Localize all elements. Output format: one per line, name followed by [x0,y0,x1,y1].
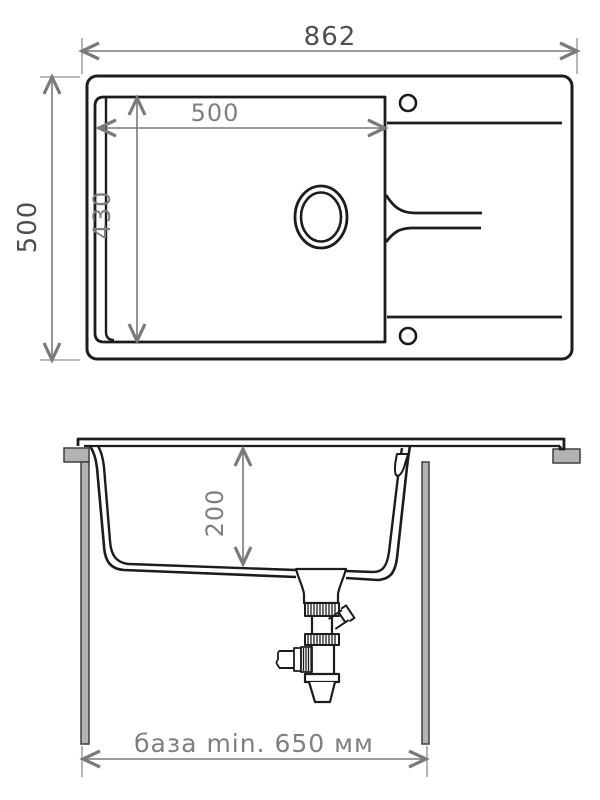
dim-base-width: база min. 650 мм [82,729,427,777]
countertop-rim [78,439,564,449]
inlet-collar [294,648,301,671]
coupling-nut-lower [305,634,339,645]
dim-label-base-width: база min. 650 мм [134,729,374,758]
dim-bowl-height: 200 [201,449,251,564]
section-view: 200 база min. 650 мм [64,439,580,777]
drain-assembly [276,569,354,702]
countertop-tab-right [553,449,580,463]
dim-label-overall-width: 862 [304,22,357,52]
inlet-broken-end [276,651,279,668]
inlet-pipe [276,647,312,672]
dim-overall-depth: 500 [13,77,80,360]
drain-flange [296,569,346,603]
cabinet-wall-left [81,462,89,744]
dim-label-overall-depth: 500 [13,201,43,254]
dim-overall-width: 862 [82,22,577,74]
bowl-wall-left-outer [90,446,296,577]
dim-label-bowl-width: 500 [191,99,240,127]
sink-technical-drawing: 862 500 500 430 [0,0,600,800]
drawing-page: 862 500 500 430 [0,0,600,800]
dim-label-bowl-depth: 430 [88,191,116,240]
coupling-nut-upper [305,603,339,616]
rim-top-line [78,439,564,449]
trap-lip [305,674,339,682]
cabinet-wall-right [422,462,429,744]
top-view: 862 500 500 430 [13,22,577,360]
trap-outlet-cone [309,682,335,702]
bowl-wall-right-inner [346,448,402,572]
dim-label-bowl-height: 200 [201,489,229,538]
countertop-tab-left [64,448,89,462]
trap-body [311,645,334,674]
bowl-wall-left-inner [98,446,296,570]
